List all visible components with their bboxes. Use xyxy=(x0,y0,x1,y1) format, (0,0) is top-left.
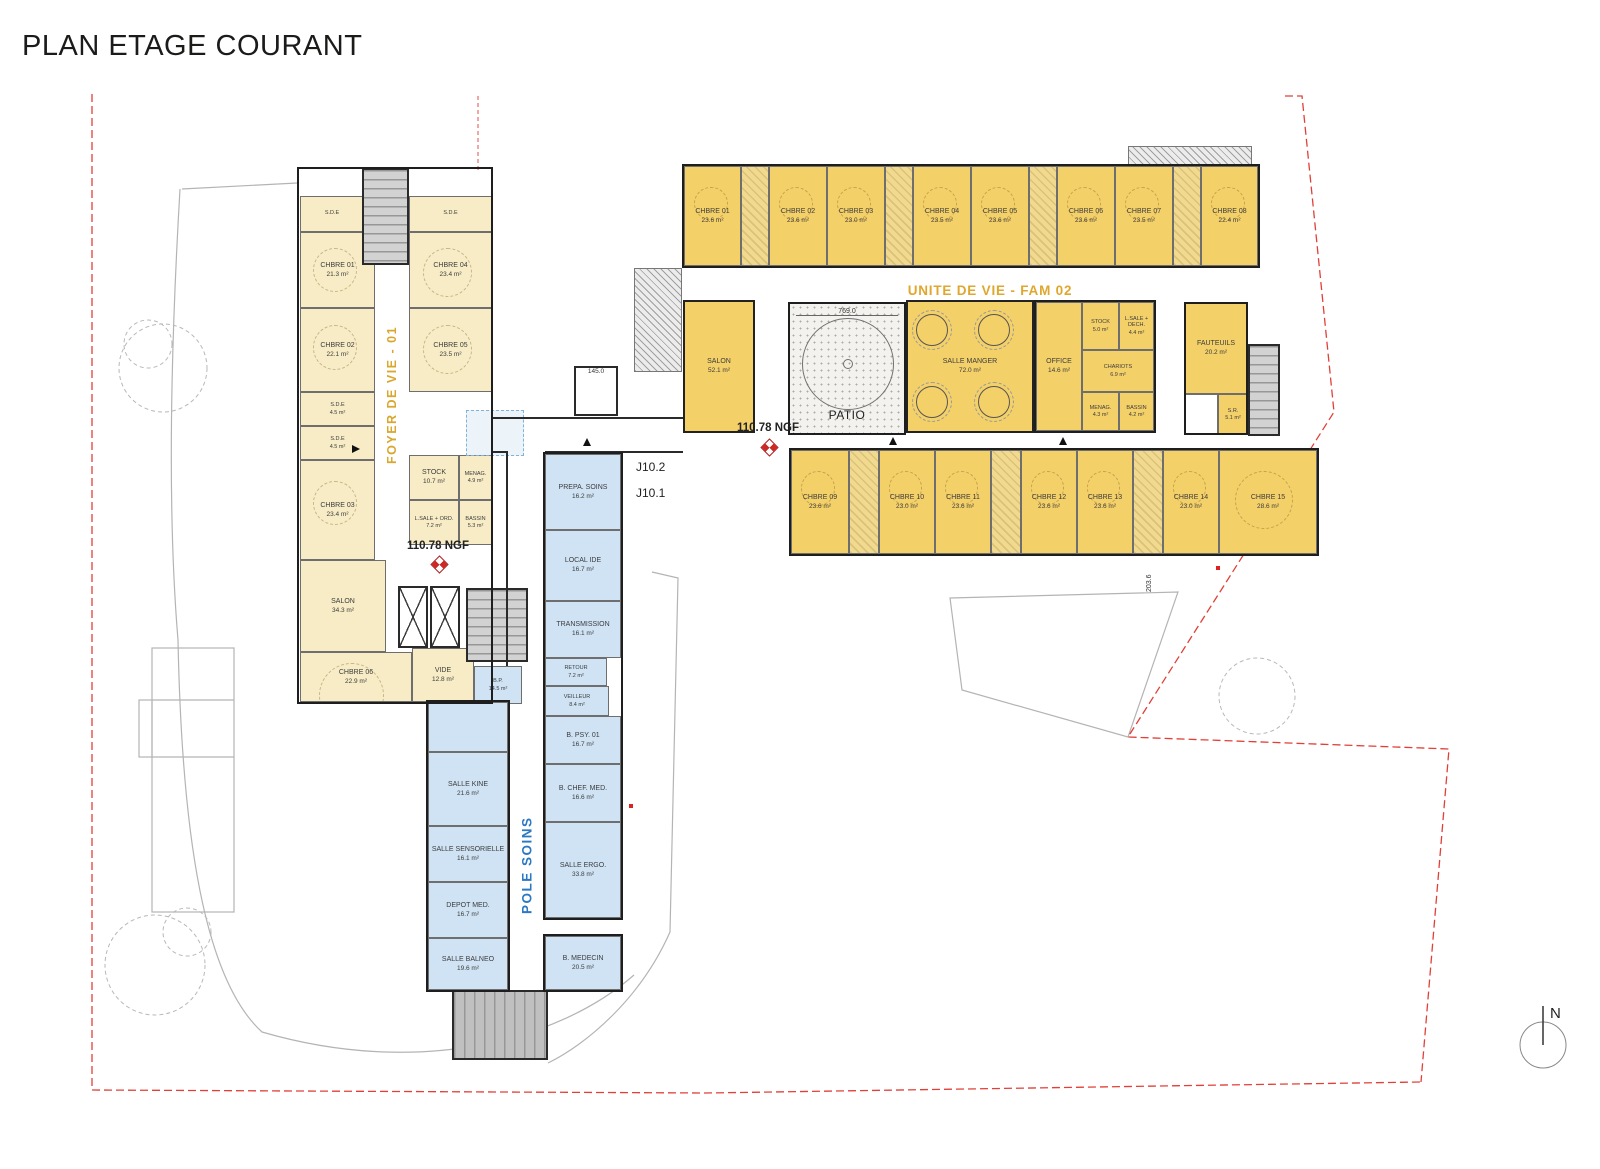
room-unite-chbre-01: CHBRE 0123.6 m² xyxy=(684,166,741,266)
room-foyer-chbre-04: CHBRE 0423.4 m² xyxy=(409,232,492,308)
room-unite-chbre-06: CHBRE 0623.6 m² xyxy=(1057,166,1115,266)
room-foyer-chbre-02: CHBRE 0222.1 m² xyxy=(300,308,375,392)
room-unite-chbre-13: CHBRE 1323.6 m² xyxy=(1077,450,1133,554)
floor-plan-canvas: N PLAN ETAGE COURANT S.D.E S.D.E CHBRE 0… xyxy=(0,0,1600,1169)
room-pole-prepa-soins: PREPA. SOINS16.2 m² xyxy=(545,454,621,530)
door-arrow-icon xyxy=(889,437,897,445)
room-pole-salle-sensorielle: SALLE SENSORIELLE16.1 m² xyxy=(428,826,508,882)
room-unite-chbre-11: CHBRE 1123.6 m² xyxy=(935,450,991,554)
elevator-shaft-icon xyxy=(398,586,428,648)
patio-dimension: 769.0 xyxy=(796,308,898,316)
elevator-shaft-icon xyxy=(430,586,460,648)
room-foyer-bp: B.P.14.5 m² xyxy=(474,666,522,704)
dining-table-icon xyxy=(978,386,1010,418)
exterior-stair-hatch xyxy=(1128,146,1252,166)
room-unite-sr: S.R.5.1 m² xyxy=(1218,394,1248,435)
shared-bathroom xyxy=(1029,166,1057,266)
room-unite-chbre-15: CHBRE 1528.6 m² xyxy=(1219,450,1317,554)
room-foyer-sde-c: S.D.E4.5 m² xyxy=(300,392,375,426)
room-foyer-chbre-03: CHBRE 0323.4 m² xyxy=(300,460,375,560)
page-title: PLAN ETAGE COURANT xyxy=(22,30,362,63)
stairwell-pole-bottom xyxy=(452,990,548,1060)
room-unite-chbre-12: CHBRE 1223.6 m² xyxy=(1021,450,1077,554)
room-pole-bath xyxy=(428,702,508,752)
door-arrow-icon xyxy=(583,438,591,446)
boundary-dimension: 203.6 xyxy=(1146,552,1153,592)
corridor-wall xyxy=(545,451,683,453)
elevator-shaft-small: 145.0 xyxy=(574,366,618,416)
north-label: N xyxy=(1550,1005,1561,1022)
room-pole-local-ide: LOCAL IDE16.7 m² xyxy=(545,530,621,601)
unite-wing-label: UNITE DE VIE - FAM 02 xyxy=(870,283,1110,298)
corridor-wall xyxy=(506,453,508,666)
stairwell-foyer-mid xyxy=(466,588,528,662)
room-unite-chbre-14: CHBRE 1423.0 m² xyxy=(1163,450,1219,554)
shared-bathroom xyxy=(991,450,1021,554)
grid-label-j101: J10.1 xyxy=(636,486,665,500)
shared-bathroom xyxy=(741,166,769,266)
wc-accessible xyxy=(1184,394,1218,435)
shared-bathroom xyxy=(1173,166,1201,266)
room-unite-chbre-07: CHBRE 0723.5 m² xyxy=(1115,166,1173,266)
grid-label-j102: J10.2 xyxy=(636,460,665,474)
room-unite-menage: MENAG.4.3 m² xyxy=(1082,392,1119,431)
patio-label: PATIO xyxy=(796,408,898,422)
corridor-wall xyxy=(493,417,683,419)
room-pole-b-psy: B. PSY. 0116.7 m² xyxy=(545,716,621,764)
room-unite-chbre-04: CHBRE 0423.5 m² xyxy=(913,166,971,266)
room-foyer-vide: VIDE12.8 m² xyxy=(412,648,474,702)
room-foyer-sde-d: S.D.E4.5 m² xyxy=(300,426,375,460)
stairwell-unite-east xyxy=(1248,344,1280,436)
ngf-annotation-left: 110.78 NGF xyxy=(398,540,478,552)
room-pole-veilleur: VEILLEUR8.4 m² xyxy=(545,686,609,716)
marker-dot xyxy=(629,804,633,808)
stairwell-foyer-top xyxy=(362,168,409,265)
room-unite-salon: SALON52.1 m² xyxy=(683,300,755,433)
room-foyer-sde-a: S.D.E xyxy=(300,196,364,232)
room-unite-chbre-10: CHBRE 1023.0 m² xyxy=(879,450,935,554)
room-foyer-chbre-06: CHBRE 0622.9 m² xyxy=(300,652,412,702)
room-foyer-stock: STOCK10.7 m² xyxy=(409,455,459,500)
room-unite-chbre-03: CHBRE 0323.0 m² xyxy=(827,166,885,266)
room-unite-linge-sale: L.SALE + DECH.4.4 m² xyxy=(1119,302,1154,350)
north-arrow: N xyxy=(1520,1005,1566,1068)
room-foyer-sde-b: S.D.E xyxy=(409,196,492,232)
room-pole-salle-ergo: SALLE ERGO.33.8 m² xyxy=(545,822,621,918)
room-unite-office: OFFICE14.6 m² xyxy=(1036,302,1082,431)
ngf-annotation-right: 110.78 NGF xyxy=(728,422,808,434)
room-unite-stock: STOCK5.0 m² xyxy=(1082,302,1119,350)
marker-dot xyxy=(1216,566,1220,570)
dining-table-icon xyxy=(916,386,948,418)
room-foyer-menage: MENAG.4.9 m² xyxy=(459,455,492,500)
dining-table-icon xyxy=(978,314,1010,346)
shared-bathroom xyxy=(885,166,913,266)
room-foyer-chbre-05: CHBRE 0523.5 m² xyxy=(409,308,492,392)
shared-bathroom xyxy=(849,450,879,554)
room-pole-salle-kine: SALLE KINE21.6 m² xyxy=(428,752,508,826)
room-unite-chariots: CHARIOTS6.9 m² xyxy=(1082,350,1154,392)
room-pole-b-medecin: B. MEDECIN20.5 m² xyxy=(545,936,621,990)
room-pole-depot-med: DEPOT MED.16.7 m² xyxy=(428,882,508,938)
room-unite-chbre-08: CHBRE 0822.4 m² xyxy=(1201,166,1258,266)
door-arrow-icon xyxy=(1059,437,1067,445)
foyer-wing-label: FOYER DE VIE - 01 xyxy=(378,295,406,495)
door-arrow-icon xyxy=(352,445,360,453)
dining-table-icon xyxy=(916,314,948,346)
exterior-ramp-hatch xyxy=(634,268,682,372)
room-pole-b-chef-med: B. CHEF. MED.16.6 m² xyxy=(545,764,621,822)
patio-center-circle xyxy=(843,359,853,369)
room-unite-chbre-05: CHBRE 0523.6 m² xyxy=(971,166,1029,266)
room-unite-chbre-02: CHBRE 0223.6 m² xyxy=(769,166,827,266)
room-foyer-salon: SALON34.3 m² xyxy=(300,560,386,652)
room-pole-transmission: TRANSMISSION16.1 m² xyxy=(545,601,621,658)
room-pole-salle-balneo: SALLE BALNEO19.6 m² xyxy=(428,938,508,990)
room-foyer-linge-sale: L.SALE + ORD.7.2 m² xyxy=(409,500,459,545)
room-foyer-bassin: BASSIN5.3 m² xyxy=(459,500,492,545)
room-unite-bassin: BASSIN4.2 m² xyxy=(1119,392,1154,431)
room-unite-fauteuils: FAUTEUILS20.2 m² xyxy=(1184,302,1248,394)
room-pole-retour: RETOUR7.2 m² xyxy=(545,658,607,686)
pole-wing-label: POLE SOINS xyxy=(512,775,542,955)
shared-bathroom xyxy=(1133,450,1163,554)
room-unite-chbre-09: CHBRE 0923.6 m² xyxy=(791,450,849,554)
